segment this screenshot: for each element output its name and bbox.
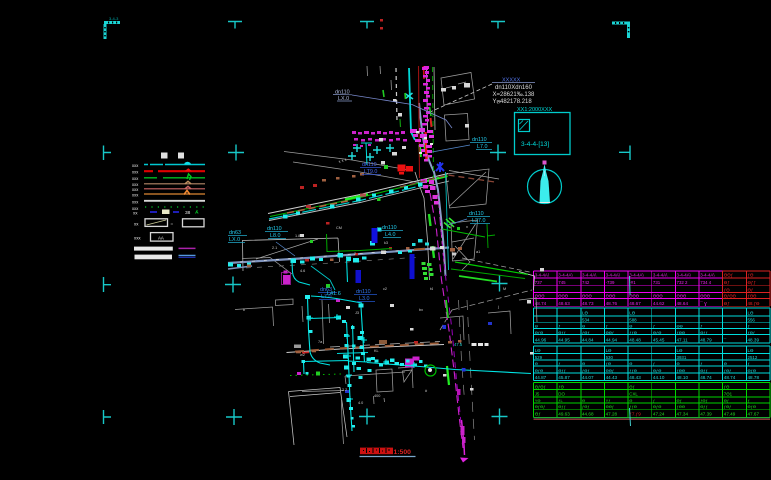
svg-text:48.76: 48.76 [606, 301, 618, 306]
svg-text:ƒ: ƒ [558, 361, 560, 366]
svg-text:w2: w2 [300, 353, 305, 357]
svg-text:dn110: dn110 [362, 162, 377, 168]
svg-text:Ɵ: Ɵ [629, 398, 632, 403]
svg-text:dn110: dn110 [382, 225, 397, 231]
svg-text:731: 731 [653, 280, 661, 285]
svg-text:Ɵƒ: Ɵƒ [724, 398, 729, 403]
svg-text:L7.0: L7.0 [477, 144, 488, 150]
svg-text:ƒƟƒ: ƒƟƒ [582, 404, 590, 409]
svg-text:Ɵƒƒ: Ɵƒƒ [558, 404, 566, 409]
svg-text:Ɵƒ: Ɵƒ [724, 301, 730, 306]
svg-text:45.87: 45.87 [558, 375, 570, 380]
svg-text:ƒ: ƒ [748, 398, 750, 403]
svg-text:ƟƟƟ: ƟƟƟ [558, 294, 569, 299]
svg-text:J5: J5 [535, 392, 540, 397]
svg-text:47.39: 47.39 [700, 411, 712, 416]
svg-text:xxx: xxx [132, 193, 139, 198]
svg-text:48.78: 48.78 [748, 375, 760, 380]
svg-text:3-4-4A\: 3-4-4A\ [653, 273, 668, 278]
svg-text:dn110: dn110 [472, 137, 487, 143]
svg-text:Ɵƒ: Ɵƒ [629, 384, 635, 389]
svg-text:Ɵƒƒ: Ɵƒƒ [700, 368, 708, 373]
svg-text:xxx: xxx [132, 200, 139, 205]
svg-text:X=28621‰.138: X=28621‰.138 [493, 92, 536, 98]
svg-text:Ɵƒƒ: Ɵƒƒ [700, 330, 708, 335]
svg-text:48.10: 48.10 [677, 375, 689, 380]
svg-text:ƒL: ƒL [558, 398, 563, 403]
svg-text:534: 534 [582, 318, 590, 323]
svg-text:44.43: 44.43 [606, 375, 618, 380]
svg-text:742: 742 [582, 280, 590, 285]
svg-text:734 4: 734 4 [700, 280, 712, 285]
svg-text:DO: DO [558, 392, 565, 397]
svg-text:47.34: 47.34 [677, 411, 689, 416]
svg-text:-#1: -#1 [629, 280, 636, 285]
svg-text:Ɵƒƒ: Ɵƒƒ [558, 368, 566, 373]
svg-text:dn63: dn63 [229, 230, 241, 236]
svg-text:ƒƟ: ƒƟ [558, 384, 564, 389]
svg-text:44.95: 44.95 [558, 338, 570, 343]
svg-text:xxx: xxx [132, 163, 139, 168]
svg-text:ƒ: ƒ [700, 324, 702, 329]
svg-text:Ɵ: Ɵ [535, 361, 538, 366]
svg-text:2.2: 2.2 [342, 388, 347, 392]
svg-text:2: 2 [354, 252, 356, 256]
svg-text:3-4-4A\: 3-4-4A\ [677, 273, 692, 278]
svg-text:745: 745 [558, 280, 566, 285]
svg-text:4.0: 4.0 [358, 401, 363, 405]
svg-text:45.45: 45.45 [653, 338, 665, 343]
svg-text:ƟƟƒ: ƟƟƒ [606, 330, 614, 335]
svg-text:Ɵƒ: Ɵƒ [535, 411, 542, 416]
svg-text:ƟƒƟ: ƟƒƟ [653, 368, 661, 373]
svg-text:47.49: 47.49 [724, 411, 736, 416]
svg-text:LƟ: LƟ [748, 310, 754, 315]
svg-text:ƒƒƟ: ƒƒƟ [629, 330, 637, 335]
svg-text:44.94: 44.94 [606, 338, 618, 343]
svg-text:ƟƒƟƒ: ƟƒƟƒ [535, 404, 546, 409]
svg-text:38: 38 [185, 210, 191, 216]
svg-text:xx: xx [133, 211, 138, 216]
svg-text:ƒ: ƒ [653, 324, 655, 329]
svg-text:Ɵ: Ɵ [582, 398, 585, 403]
svg-text:ƒ: ƒ [558, 324, 560, 329]
svg-text:ƒƟƒ: ƒƟƒ [724, 404, 732, 409]
svg-text:7Ɵ1: 7Ɵ1 [724, 392, 733, 397]
svg-text:CM: CM [336, 226, 342, 230]
svg-text:ƟƟƟ: ƟƟƟ [582, 294, 593, 299]
svg-text:ƒ: ƒ [606, 324, 608, 329]
svg-text:ƒƟ: ƒƟ [606, 361, 611, 366]
svg-text:3-4-4A\: 3-4-4A\ [606, 273, 621, 278]
svg-text:ƟƟƟ: ƟƟƟ [606, 294, 617, 299]
svg-text:588: 588 [629, 318, 637, 323]
svg-text:L8.0: L8.0 [270, 233, 281, 239]
svg-text:ƟƒƟƒ: ƟƒƟƒ [535, 384, 546, 389]
svg-text:LX.0: LX.0 [229, 237, 240, 243]
svg-text:xxx: xxx [134, 236, 141, 241]
svg-text:Ɵƒ: Ɵƒ [748, 287, 754, 292]
svg-text:48.64: 48.64 [677, 301, 689, 306]
svg-text:dn110Xdn160: dn110Xdn160 [495, 85, 533, 91]
svg-text:Ɵ: Ɵ [677, 361, 680, 366]
svg-text:Ɵ: Ɵ [629, 324, 632, 329]
svg-text:Ɵ: Ɵ [582, 324, 585, 329]
svg-text:ƒ: ƒ [653, 398, 655, 403]
svg-text:L4.0: L4.0 [385, 232, 396, 238]
svg-text:L41.6: L41.6 [327, 291, 341, 297]
svg-text:3931: 3931 [677, 355, 687, 360]
svg-text:ƟƟƟ: ƟƟƟ [629, 294, 640, 299]
svg-text:3-4-4A\: 3-4-4A\ [582, 273, 597, 278]
svg-text:3-4-4A\: 3-4-4A\ [535, 273, 550, 278]
svg-text:J3: J3 [355, 311, 359, 315]
svg-text:47.5: 47.5 [454, 342, 463, 347]
svg-text:ƒƟ: ƒƟ [724, 384, 730, 389]
svg-text:ƟƟƒ: ƟƟƒ [724, 273, 734, 278]
svg-text:49.63: 49.63 [558, 411, 570, 416]
svg-text:3-4-4A\: 3-4-4A\ [558, 273, 573, 278]
svg-text:¯ Ɣ: ¯ Ɣ [699, 300, 707, 306]
svg-text:ƒ: ƒ [748, 324, 750, 329]
svg-text:k3: k3 [384, 241, 388, 245]
svg-text:47.28: 47.28 [606, 411, 618, 416]
svg-text:-739: -739 [606, 280, 615, 285]
svg-text:¯: ¯ [723, 337, 727, 343]
svg-text:48.ƒƟ: 48.ƒƟ [748, 301, 761, 306]
svg-text:48.73: 48.73 [582, 301, 594, 306]
svg-text:L27.0: L27.0 [472, 218, 486, 224]
svg-text:48.63: 48.63 [558, 301, 570, 306]
svg-text:Yƒ: Yƒ [606, 398, 611, 403]
svg-text:LƟ: LƟ [748, 348, 754, 353]
svg-text:ƒ: ƒ [700, 361, 702, 366]
svg-text:L3.0: L3.0 [359, 296, 370, 302]
svg-text:ƒƒƟ: ƒƒƟ [629, 404, 637, 409]
svg-text:xxx: xxx [132, 176, 139, 181]
svg-text:1.8: 1.8 [295, 234, 300, 238]
svg-text:Ɵ: Ɵ [629, 361, 632, 366]
svg-text:ƟƟƟ: ƟƟƟ [677, 294, 688, 299]
svg-text:2.1: 2.1 [272, 246, 277, 250]
svg-text:c2: c2 [383, 287, 387, 291]
svg-text:ƟƒƟ: ƟƒƟ [535, 330, 543, 335]
svg-text:48.48: 48.48 [629, 338, 641, 343]
svg-text:ƟƟ: ƟƟ [677, 324, 683, 329]
svg-text:Ɵ: Ɵ [724, 361, 727, 366]
svg-text:Ɵ: Ɵ [535, 324, 538, 329]
svg-text:ƒƟƒ: ƒƟƒ [582, 368, 590, 373]
svg-text:2512: 2512 [748, 355, 758, 360]
svg-text:48.74: 48.74 [724, 375, 736, 380]
svg-text:ƒƟƒ: ƒƟƒ [748, 330, 756, 335]
svg-text:xxx: xxx [132, 187, 139, 192]
svg-text:ƒƟƟ: ƒƟƟ [677, 330, 685, 335]
svg-text:CXL: CXL [629, 392, 638, 397]
svg-text:x: x [466, 225, 468, 229]
svg-text:ƒ: ƒ [748, 361, 750, 366]
svg-text:48.79: 48.79 [700, 338, 712, 343]
svg-text:bx: bx [419, 308, 423, 312]
svg-text:ƟƟƒ: ƟƟƒ [606, 368, 614, 373]
svg-text:44.84: 44.84 [582, 338, 594, 343]
svg-text:48.39: 48.39 [748, 338, 760, 343]
svg-text:ƒƟƒ: ƒƟƒ [724, 368, 732, 373]
svg-text:400: 400 [374, 394, 380, 398]
svg-text:dn110: dn110 [267, 226, 282, 232]
svg-text:3-4-4A\: 3-4-4A\ [700, 273, 715, 278]
svg-text:48.74: 48.74 [700, 375, 712, 380]
svg-text:t4: t4 [430, 287, 433, 291]
svg-text:b: b [243, 308, 245, 312]
svg-text:LƟ: LƟ [606, 348, 612, 353]
svg-text:44.07: 44.07 [582, 375, 594, 380]
svg-text:M: M [503, 287, 506, 291]
svg-text:ƒƒƟ: ƒƒƟ [629, 368, 637, 373]
svg-text:YƟ: YƟ [535, 398, 541, 403]
svg-text:47.24: 47.24 [653, 411, 665, 416]
svg-text:44.62: 44.62 [653, 301, 665, 306]
svg-text:Ɵ: Ɵ [582, 361, 585, 366]
svg-text:ƒ7.ƒ9: ƒ7.ƒ9 [629, 411, 641, 416]
svg-text:ƒƟƟ: ƒƟƟ [748, 294, 758, 299]
svg-text:ƟƟƒ: ƟƟƒ [606, 404, 614, 409]
svg-text:Ɵƒƒ: Ɵƒƒ [748, 280, 757, 285]
svg-text:LT9.0: LT9.0 [364, 169, 377, 175]
svg-text:Ɵƒƒ: Ɵƒƒ [558, 330, 566, 335]
svg-text:ƒ: ƒ [653, 361, 655, 366]
svg-text:dn110: dn110 [469, 211, 484, 217]
svg-text:ƟƒƟƟ: ƟƒƟƟ [724, 294, 737, 299]
svg-text:48.67: 48.67 [629, 301, 641, 306]
svg-text:47.67: 47.67 [748, 411, 760, 416]
svg-text:ƟƟƟ: ƟƟƟ [653, 294, 664, 299]
svg-text:556: 556 [748, 318, 756, 323]
svg-text:4.6: 4.6 [300, 269, 305, 273]
svg-text:KL: KL [374, 349, 379, 353]
svg-text:ƟƒƟ: ƟƒƟ [748, 404, 756, 409]
svg-text:AA: AA [158, 236, 164, 241]
svg-text:j: j [497, 305, 499, 309]
svg-text:ƒƟ: ƒƟ [724, 287, 730, 292]
svg-text:ƒƟƒ: ƒƟƒ [700, 398, 708, 403]
svg-text:48.43: 48.43 [629, 375, 641, 380]
svg-text:3-4-4-[13]: 3-4-4-[13] [521, 141, 549, 148]
svg-text:ƟƟƟ: ƟƟƟ [700, 294, 711, 299]
svg-text:530: 530 [606, 355, 614, 360]
svg-text:ƒƟƟ: ƒƟƟ [677, 404, 685, 409]
svg-text:3-4-3: 3-4-3 [109, 16, 119, 21]
svg-text:44.96: 44.96 [535, 338, 547, 343]
svg-text:47.11: 47.11 [677, 338, 689, 343]
svg-text:=: = [171, 221, 174, 226]
svg-text:ƟƒƟ: ƟƒƟ [748, 368, 756, 373]
svg-text:ƟƒƟ: ƟƒƟ [653, 330, 661, 335]
svg-text:Ɵƒƒ: Ɵƒƒ [700, 404, 708, 409]
svg-text:44.10: 44.10 [653, 375, 665, 380]
svg-text:xxx: xxx [132, 170, 139, 175]
svg-text:ƒƟƒ: ƒƟƒ [582, 330, 590, 335]
svg-text:732 2: 732 2 [677, 280, 689, 285]
svg-text:1:500: 1:500 [394, 449, 412, 456]
svg-text:LƟ: LƟ [582, 310, 588, 315]
svg-text:ƒƟ: ƒƟ [748, 273, 754, 278]
svg-text:LƟ: LƟ [629, 310, 635, 315]
svg-text:a1: a1 [476, 250, 480, 254]
svg-text:Ɵƒ: Ɵƒ [677, 398, 682, 403]
svg-text:LƟ: LƟ [677, 348, 683, 353]
svg-text:ƟƒƟ: ƟƒƟ [535, 368, 543, 373]
svg-text:44.87: 44.87 [535, 375, 547, 380]
svg-text:ƟƒƟ: ƟƒƟ [653, 404, 661, 409]
svg-text:44.68: 44.68 [582, 411, 594, 416]
svg-text:529: 529 [535, 355, 543, 360]
svg-text:3-4-4A\: 3-4-4A\ [629, 273, 644, 278]
svg-text:dn110: dn110 [356, 289, 371, 295]
svg-text:LƟ: LƟ [535, 348, 541, 353]
svg-text:ƒƟƟ: ƒƟƟ [677, 368, 685, 373]
svg-text:Ɵƒ: Ɵƒ [724, 280, 730, 285]
svg-text:737: 737 [535, 280, 543, 285]
